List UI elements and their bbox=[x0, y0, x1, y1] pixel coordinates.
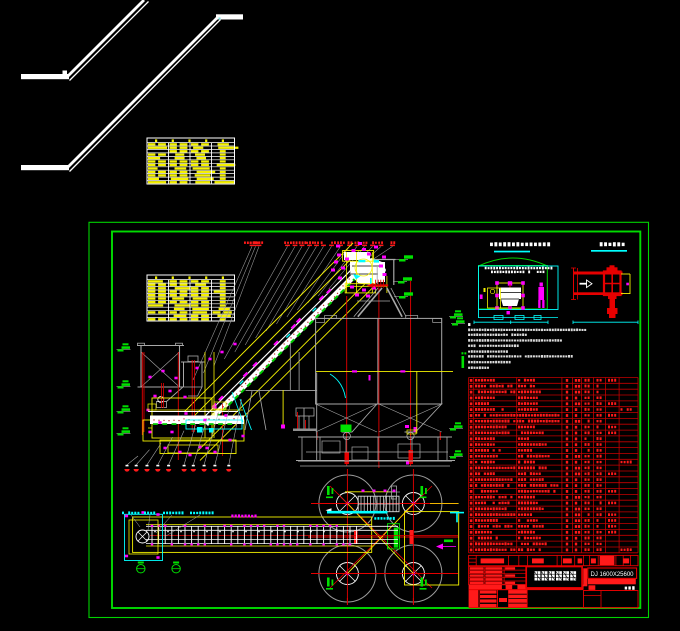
svg-text:DJ 1600X25600: DJ 1600X25600 bbox=[591, 571, 635, 578]
